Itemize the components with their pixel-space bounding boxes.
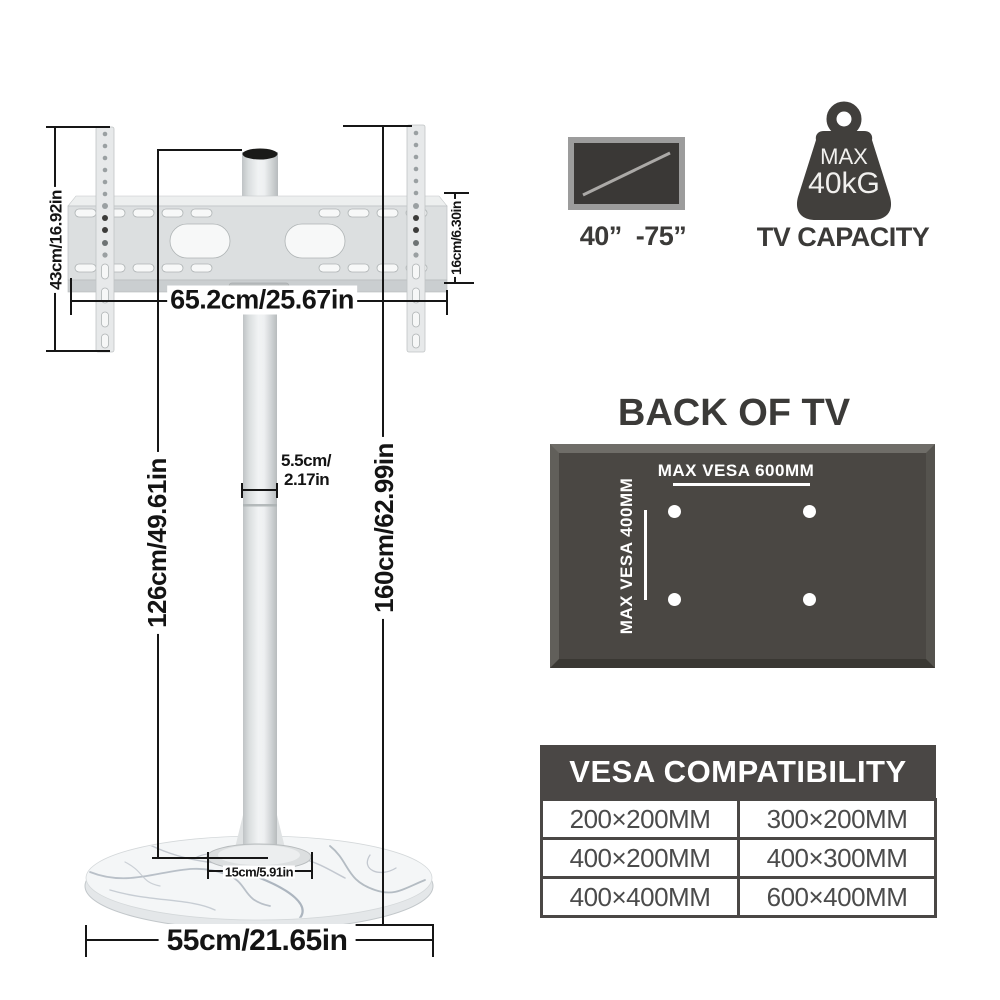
tv-size-label: 40” -75” (558, 221, 708, 252)
left-rail (96, 127, 114, 352)
vesa-table-row: 400×200MM 400×300MM (542, 839, 936, 878)
product-infographic: 43cm/16.92in 65.2cm/25.67in 16cm/6.30in … (0, 0, 1000, 1000)
tv-back-panel: MAX VESA 600MM MAX VESA 400MM (550, 444, 935, 668)
pole-joint (243, 504, 277, 507)
weight-value: 40kG (808, 169, 880, 199)
vesa-table-row: 200×200MM 300×200MM (542, 800, 936, 839)
tv-capacity-label: TV CAPACITY (753, 222, 933, 253)
right-rail (407, 125, 425, 352)
max-vesa-400-line (644, 510, 647, 600)
bracket-oval-cutout (170, 224, 230, 258)
tv-stand-diagram (0, 0, 520, 1000)
vesa-hole-icon (668, 593, 681, 606)
dim-total-height: 160cm/62.99in (370, 437, 398, 619)
max-vesa-600-label: MAX VESA 600MM (616, 461, 856, 481)
vesa-size-cell: 400×300MM (739, 839, 936, 878)
vesa-hole-icon (803, 593, 816, 606)
dim-pole-diameter-line1: 5.5cm/ (281, 451, 331, 470)
vesa-hole-icon (803, 505, 816, 518)
weight-icon: MAX 40kG (778, 98, 908, 226)
dim-pole-diameter: 5.5cm/ 2.17in (281, 451, 331, 489)
dim-base-width: 55cm/21.65in (159, 924, 356, 958)
dim-bracket-height: 43cm/16.92in (47, 187, 66, 293)
vesa-hole-icon (668, 505, 681, 518)
tv-diagonal-icon (574, 143, 679, 204)
vesa-table-row: 400×400MM 600×400MM (542, 878, 936, 917)
mounting-bracket (68, 196, 447, 296)
dim-pole-height: 126cm/49.61in (143, 452, 171, 634)
vesa-size-cell: 300×200MM (739, 800, 936, 839)
vesa-compatibility-header: VESA COMPATIBILITY (540, 745, 936, 798)
vesa-size-cell: 600×400MM (739, 878, 936, 917)
vesa-size-cell: 400×400MM (542, 878, 739, 917)
dim-bracket-width: 65.2cm/25.67in (167, 286, 357, 315)
dim-base-collar-width: 15cm/5.91in (223, 866, 295, 879)
max-vesa-400-label: MAX VESA 400MM (618, 471, 636, 641)
vesa-size-cell: 200×200MM (542, 800, 739, 839)
bracket-oval-cutout (285, 224, 345, 258)
back-of-tv-title: BACK OF TV (594, 392, 874, 435)
vesa-size-cell: 400×200MM (542, 839, 739, 878)
vesa-compatibility-table: 200×200MM 300×200MM 400×200MM 400×300MM … (540, 798, 937, 918)
max-vesa-600-line (673, 483, 810, 486)
dim-pole-diameter-line2: 2.17in (281, 470, 331, 489)
tv-size-icon (568, 137, 685, 210)
weight-max-label: MAX (820, 146, 868, 168)
dim-bracket-depth: 16cm/6.30in (448, 199, 464, 277)
